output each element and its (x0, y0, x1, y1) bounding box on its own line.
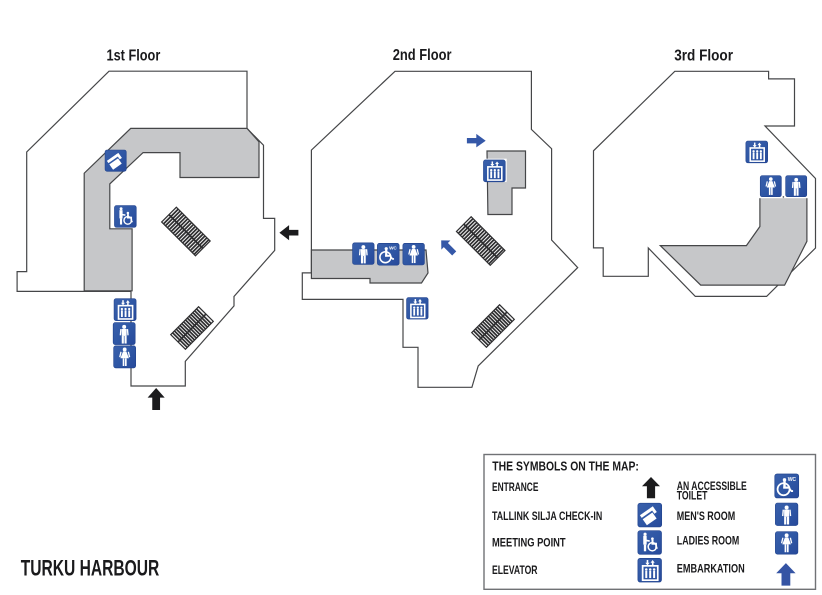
svg-text:EMBARKATION: EMBARKATION (677, 562, 745, 576)
svg-text:MEN'S ROOM: MEN'S ROOM (677, 509, 735, 523)
svg-text:MEETING POINT: MEETING POINT (492, 535, 566, 549)
svg-text:ENTRANCE: ENTRANCE (492, 480, 538, 494)
svg-text:TALLINK SILJA CHECK-IN: TALLINK SILJA CHECK-IN (492, 509, 602, 523)
svg-text:LADIES ROOM: LADIES ROOM (677, 533, 740, 547)
svg-text:THE SYMBOLS ON THE MAP:: THE SYMBOLS ON THE MAP: (492, 458, 639, 473)
svg-text:TOILET: TOILET (677, 489, 708, 503)
svg-text:TURKU HARBOUR: TURKU HARBOUR (21, 556, 160, 581)
svg-text:1st Floor: 1st Floor (107, 47, 161, 64)
svg-text:ELEVATOR: ELEVATOR (492, 563, 538, 577)
svg-text:3rd Floor: 3rd Floor (674, 47, 733, 64)
svg-text:2nd Floor: 2nd Floor (393, 47, 452, 64)
